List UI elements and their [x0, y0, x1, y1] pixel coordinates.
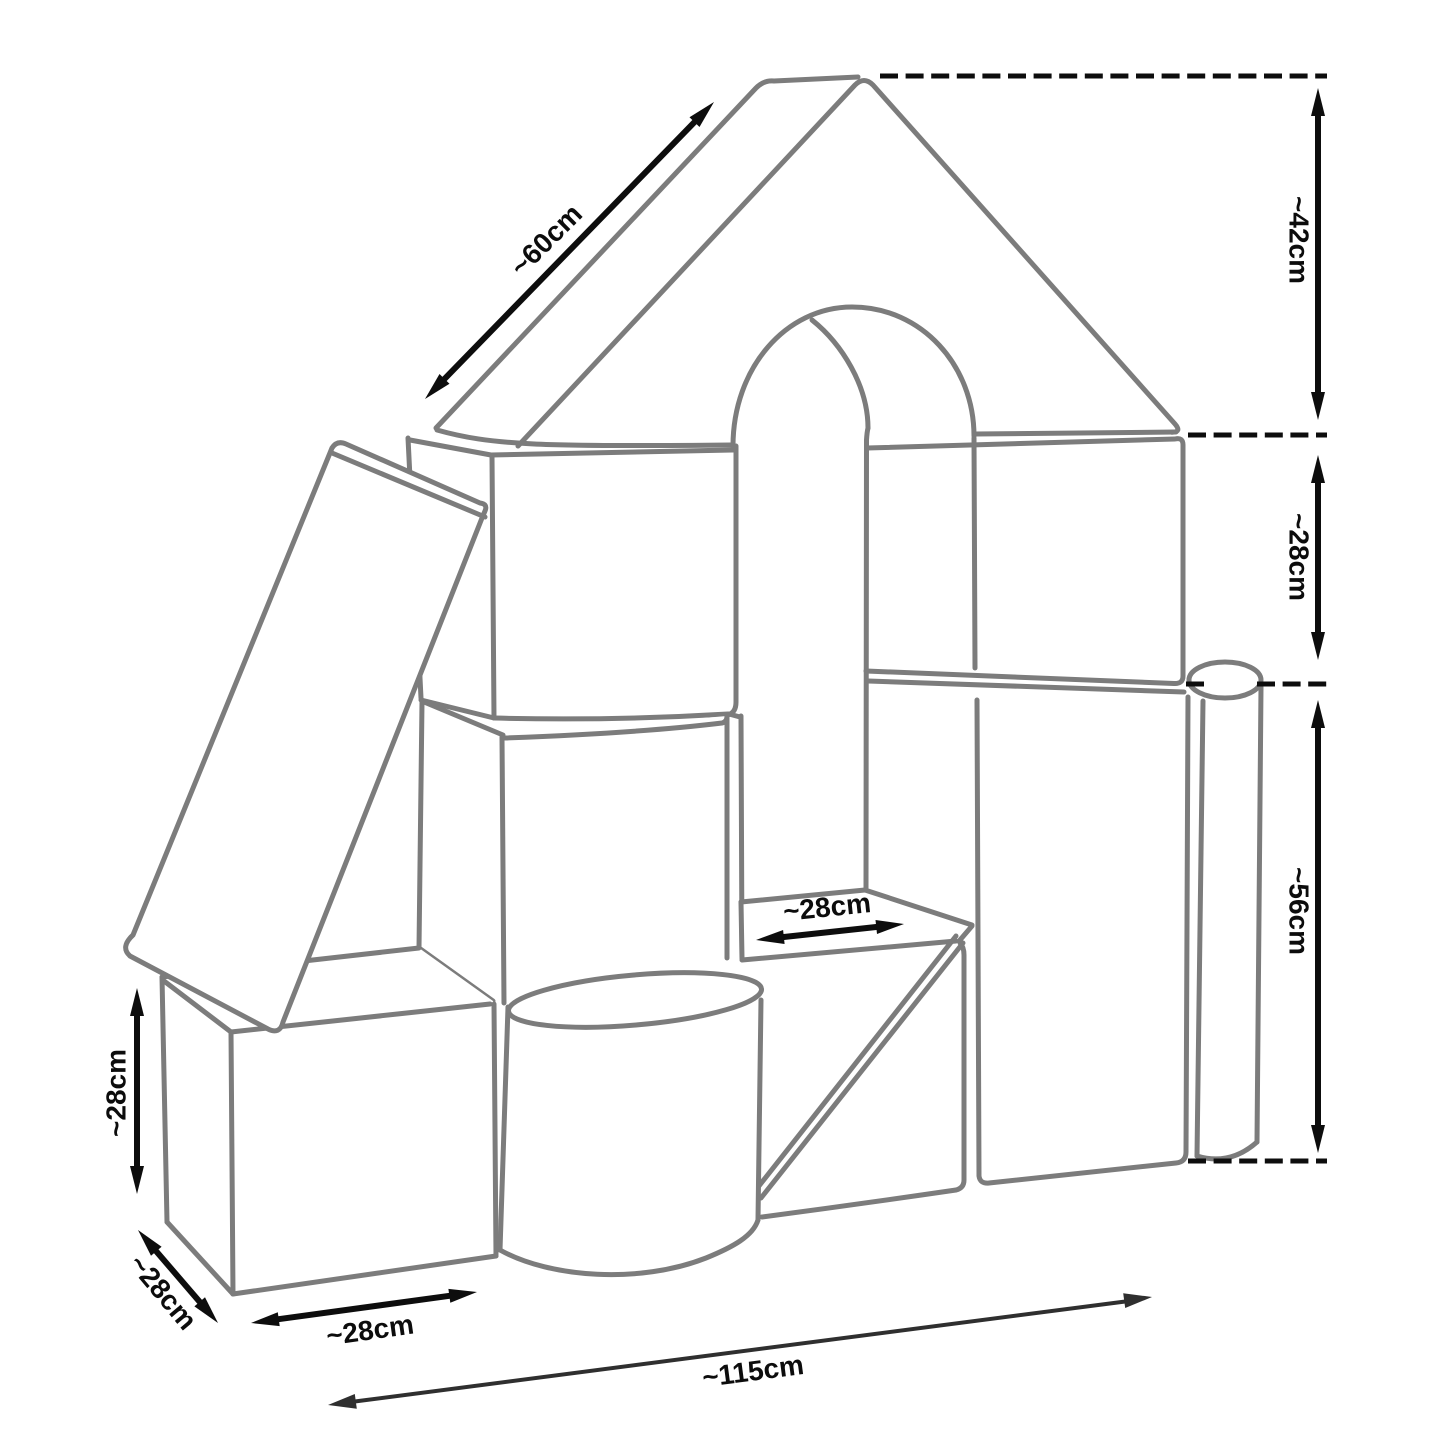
svg-text:~42cm: ~42cm: [1284, 196, 1315, 284]
svg-text:~28cm: ~28cm: [1284, 513, 1315, 601]
svg-text:~56cm: ~56cm: [1284, 867, 1315, 955]
svg-text:~28cm: ~28cm: [101, 1049, 132, 1137]
